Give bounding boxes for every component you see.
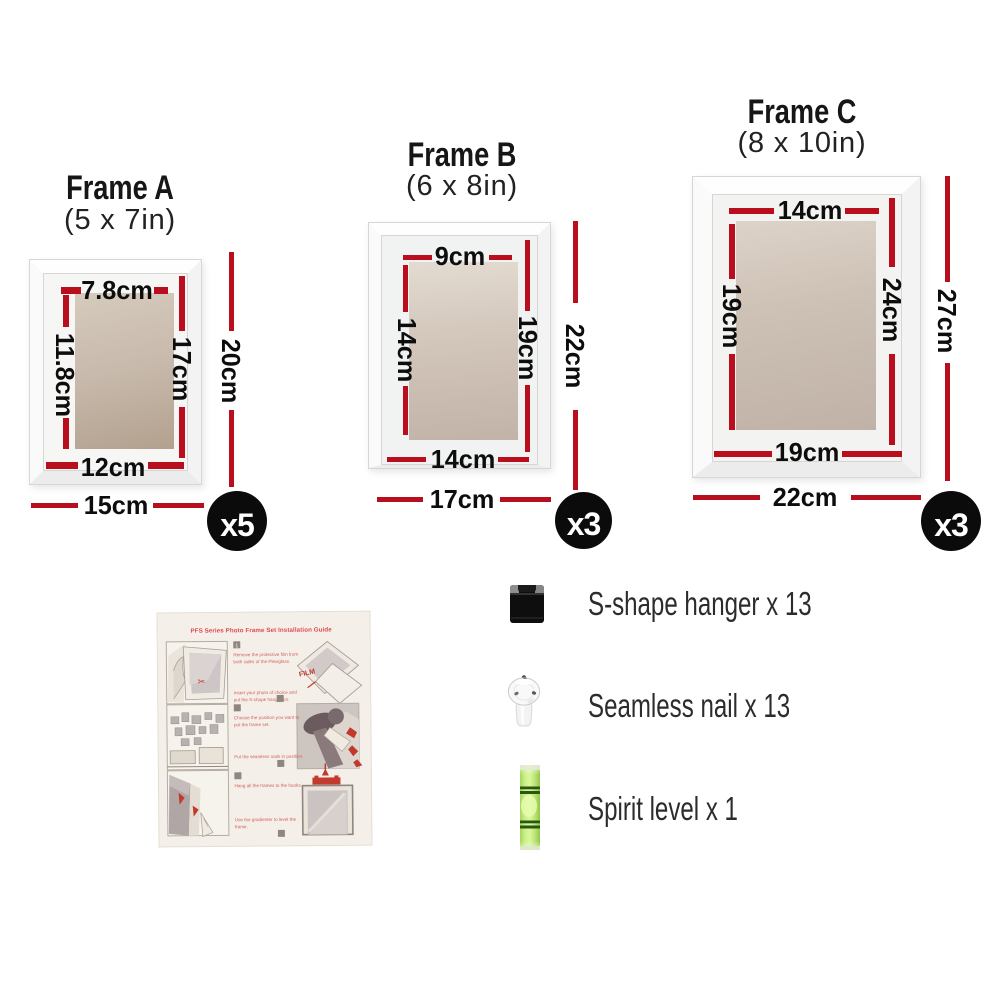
svg-text:Choose the position you want t: Choose the position you want to — [234, 715, 300, 721]
svg-text:Insert your photo of choice an: Insert your photo of choice and — [234, 690, 298, 696]
svg-text:✂: ✂ — [198, 677, 206, 687]
svg-text:PFS Series Photo Frame Set Ins: PFS Series Photo Frame Set Installation … — [190, 626, 332, 634]
svg-text:both sides of the Plexiglass.: both sides of the Plexiglass. — [233, 659, 290, 664]
svg-text:Use the gradienter to level th: Use the gradienter to level the — [235, 817, 297, 823]
svg-text:Put the seamless nails in posi: Put the seamless nails in position. — [234, 754, 303, 760]
svg-text:1: 1 — [235, 643, 238, 649]
svg-text:Remove the protective film fro: Remove the protective film from — [233, 652, 298, 658]
svg-text:put the frame set.: put the frame set. — [234, 722, 270, 727]
svg-text:Hang all the frames to the hoo: Hang all the frames to the hooks. — [234, 783, 301, 789]
svg-text:frame.: frame. — [235, 824, 248, 829]
